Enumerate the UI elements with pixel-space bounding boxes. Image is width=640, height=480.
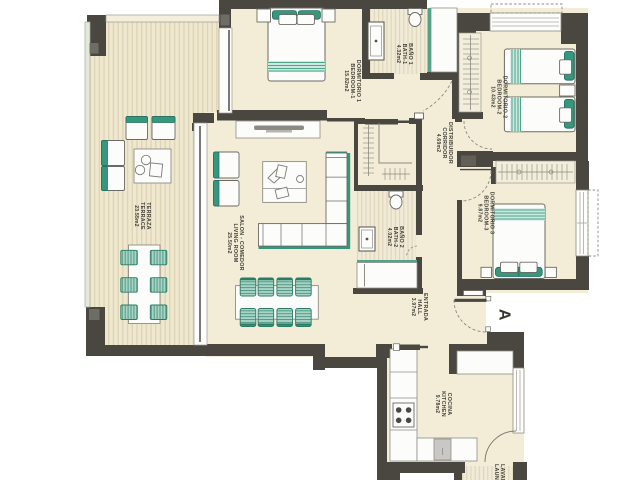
svg-text:9.87m2: 9.87m2 bbox=[477, 204, 483, 222]
svg-text:25.50m2: 25.50m2 bbox=[226, 232, 232, 254]
svg-text:15.82m2: 15.82m2 bbox=[343, 70, 349, 92]
svg-text:BAÑO 2: BAÑO 2 bbox=[398, 226, 405, 248]
svg-text:10.43m2: 10.43m2 bbox=[490, 86, 496, 108]
svg-text:BAÑO 1: BAÑO 1 bbox=[407, 43, 414, 65]
svg-text:LAUNDRY: LAUNDRY bbox=[493, 464, 499, 480]
svg-text:4.69m2: 4.69m2 bbox=[435, 134, 441, 152]
svg-text:23.55m2: 23.55m2 bbox=[133, 205, 139, 227]
svg-text:4.02m2: 4.02m2 bbox=[386, 228, 392, 246]
svg-text:3.97m2: 3.97m2 bbox=[410, 298, 416, 316]
svg-text:9.78m2: 9.78m2 bbox=[434, 395, 440, 413]
svg-text:A: A bbox=[496, 309, 513, 321]
svg-text:4.32m2: 4.32m2 bbox=[395, 45, 401, 63]
